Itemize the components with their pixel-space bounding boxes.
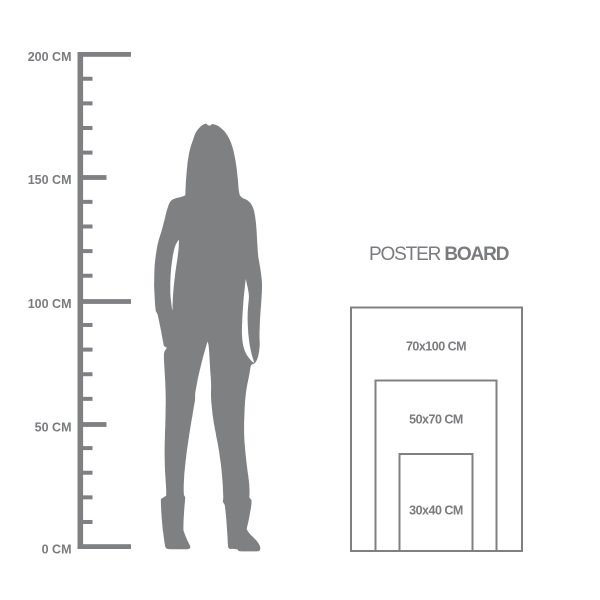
svg-text:0 CM: 0 CM (42, 542, 72, 556)
svg-text:50x70 CM: 50x70 CM (409, 413, 463, 427)
svg-text:200 CM: 200 CM (28, 50, 72, 64)
svg-text:POSTER BOARD: POSTER BOARD (369, 244, 509, 265)
svg-text:70x100 CM: 70x100 CM (406, 340, 466, 354)
svg-text:100 CM: 100 CM (28, 297, 72, 311)
svg-text:30x40 CM: 30x40 CM (409, 504, 463, 518)
svg-text:150 CM: 150 CM (28, 173, 72, 187)
svg-text:50 CM: 50 CM (35, 420, 72, 434)
